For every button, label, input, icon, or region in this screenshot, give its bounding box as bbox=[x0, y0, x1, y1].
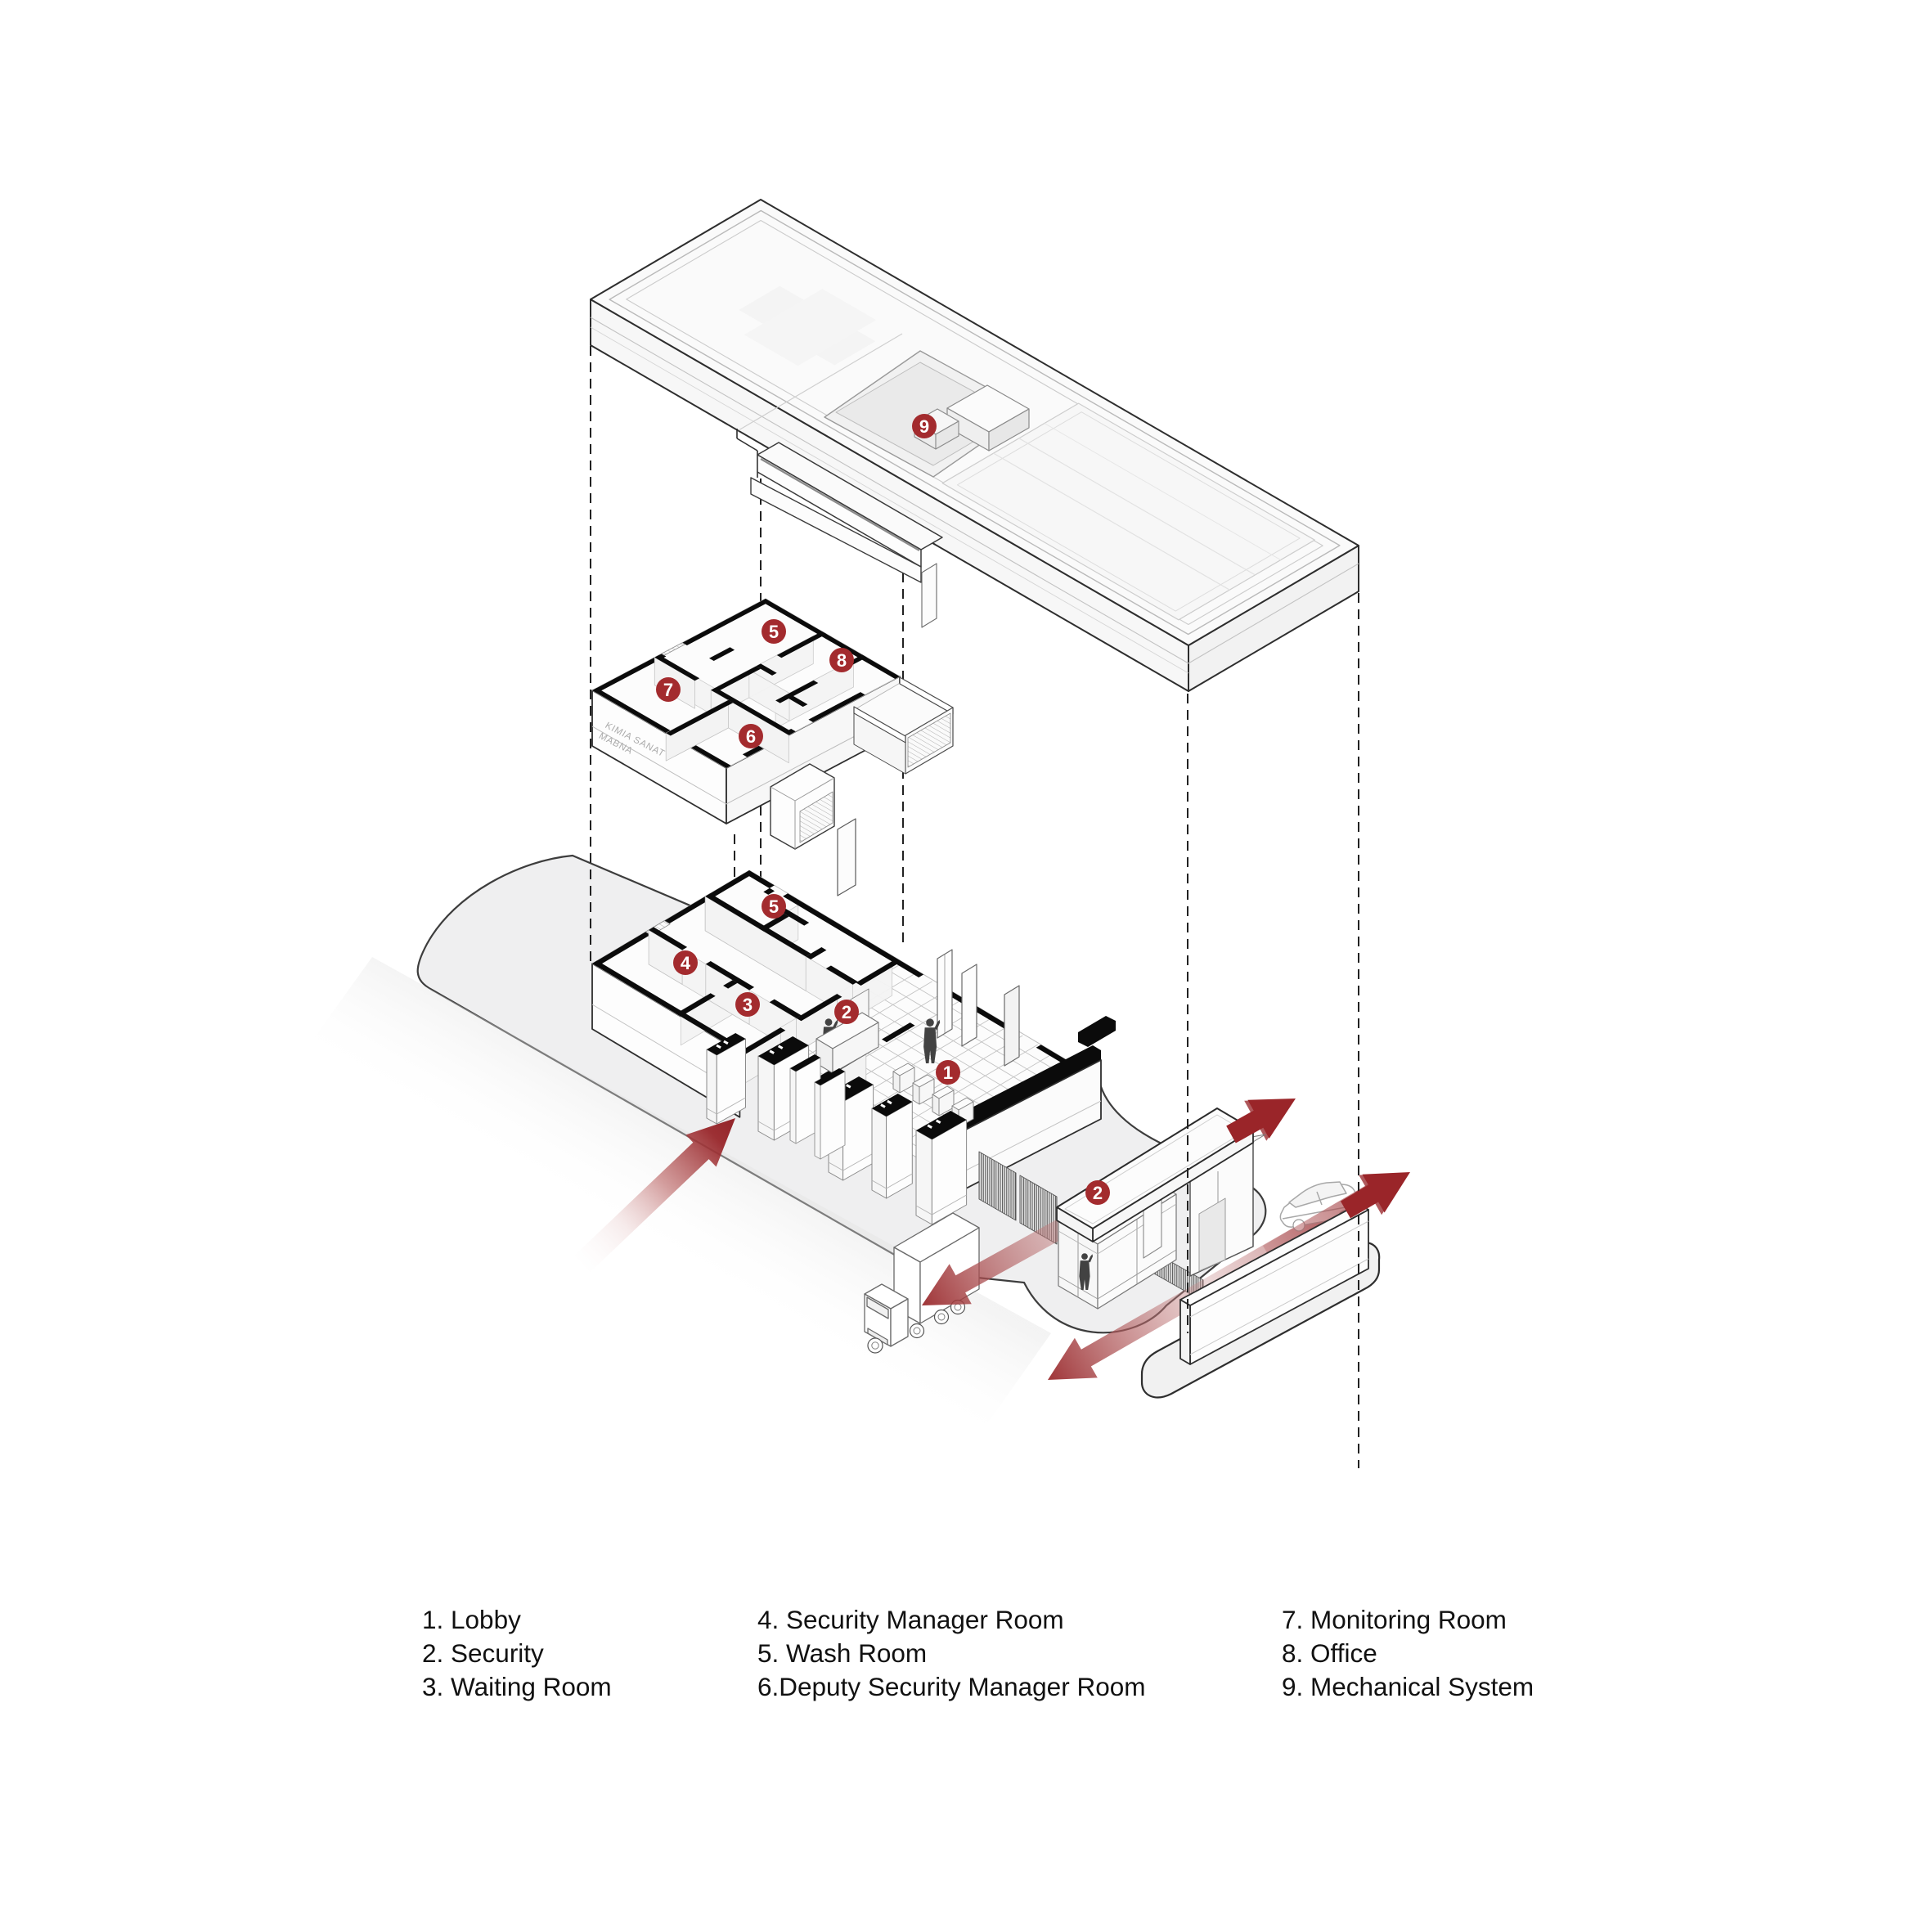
svg-text:2: 2 bbox=[842, 1002, 851, 1022]
svg-text:6.Deputy Security Manager Room: 6.Deputy Security Manager Room bbox=[757, 1672, 1145, 1701]
svg-text:8: 8 bbox=[837, 650, 847, 671]
svg-text:9. Mechanical System: 9. Mechanical System bbox=[1282, 1672, 1534, 1701]
svg-text:3: 3 bbox=[743, 995, 753, 1015]
svg-text:5: 5 bbox=[769, 622, 779, 642]
svg-text:5. Wash Room: 5. Wash Room bbox=[757, 1638, 927, 1668]
svg-text:8. Office: 8. Office bbox=[1282, 1638, 1377, 1668]
svg-text:7. Monitoring Room: 7. Monitoring Room bbox=[1282, 1605, 1507, 1634]
svg-text:5: 5 bbox=[769, 896, 779, 917]
svg-text:9: 9 bbox=[919, 416, 929, 437]
svg-text:4: 4 bbox=[681, 953, 691, 973]
svg-text:1. Lobby: 1. Lobby bbox=[422, 1605, 521, 1634]
svg-text:2. Security: 2. Security bbox=[422, 1638, 544, 1668]
svg-text:1: 1 bbox=[943, 1063, 953, 1083]
svg-text:7: 7 bbox=[663, 680, 673, 700]
svg-text:2: 2 bbox=[1093, 1183, 1103, 1203]
svg-text:4. Security Manager Room: 4. Security Manager Room bbox=[757, 1605, 1064, 1634]
svg-text:6: 6 bbox=[746, 726, 756, 747]
svg-text:3. Waiting Room: 3. Waiting Room bbox=[422, 1672, 612, 1701]
